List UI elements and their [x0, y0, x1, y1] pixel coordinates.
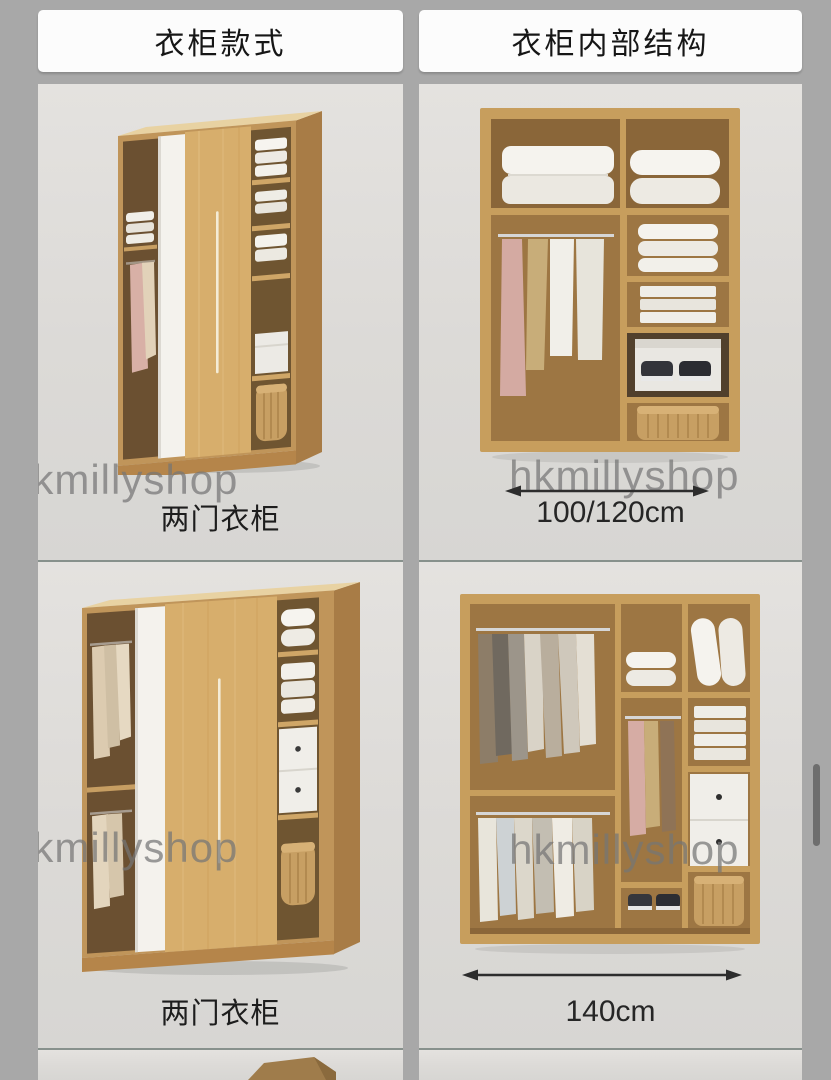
- wardrobe-front: [118, 120, 296, 475]
- structure-card-2: hkmillyshop 140cm: [419, 562, 802, 1048]
- wardrobe-style-1-image: [100, 100, 340, 475]
- wardrobe-interior-140-image: [460, 594, 760, 954]
- style-card-3-partial: [38, 1050, 403, 1080]
- style-card-2: hkmillyshop 两门衣柜: [38, 562, 403, 1048]
- section-header-structure: 衣柜内部结构: [419, 10, 802, 72]
- column-internal-structure: 衣柜内部结构: [419, 0, 802, 1080]
- watermark: hkmillyshop: [38, 824, 238, 872]
- structure-card-1: hkmillyshop 100/120cm: [419, 84, 802, 560]
- column-wardrobe-styles: 衣柜款式: [38, 0, 403, 1080]
- wardrobe-interior-100-120-image: [480, 108, 740, 463]
- section-header-styles: 衣柜款式: [38, 10, 403, 72]
- style-card-1-caption: 两门衣柜: [38, 496, 403, 538]
- wardrobe-style-2-image: [68, 576, 373, 976]
- product-detail-page: 衣柜款式: [0, 0, 831, 1080]
- style-card-1: hkmillyshop 两门衣柜: [38, 84, 403, 560]
- structure-card-3-partial: [419, 1050, 802, 1080]
- dimension-arrow: [462, 968, 742, 982]
- wardrobe-style-3-image-partial: [38, 1050, 403, 1080]
- wardrobe-front: [82, 590, 334, 972]
- structure-card-1-caption: 100/120cm: [419, 496, 802, 530]
- scrollbar-thumb[interactable]: [813, 764, 820, 846]
- structure-card-2-caption: 140cm: [419, 995, 802, 1029]
- watermark: hkmillyshop: [509, 826, 739, 874]
- section-header-structure-label: 衣柜内部结构: [512, 19, 710, 63]
- style-card-2-caption: 两门衣柜: [38, 990, 403, 1032]
- section-header-styles-label: 衣柜款式: [155, 19, 287, 63]
